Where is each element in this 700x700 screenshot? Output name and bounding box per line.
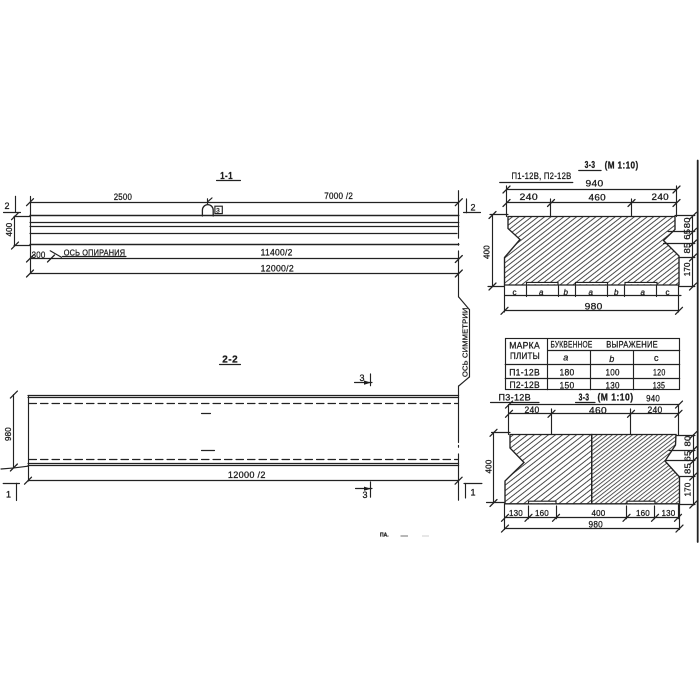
svg-text:a: a — [539, 288, 544, 297]
svg-text:65: 65 — [683, 228, 692, 239]
svg-text:ВЫРАЖЕНИЕ: ВЫРАЖЕНИЕ — [606, 340, 658, 350]
svg-text:П1-12В: П1-12В — [509, 367, 540, 377]
svg-text:П2-12В: П2-12В — [510, 380, 541, 390]
svg-text:980: 980 — [4, 427, 13, 441]
svg-text:3-3: 3-3 — [585, 160, 596, 171]
svg-text:МАРКА: МАРКА — [509, 340, 540, 350]
svg-text:3: 3 — [360, 373, 365, 383]
svg-text:80: 80 — [684, 435, 693, 446]
svg-text:160: 160 — [636, 509, 650, 518]
svg-text:2-2: 2-2 — [222, 354, 238, 365]
svg-text:2: 2 — [471, 203, 476, 213]
svg-text:(М 1:10): (М 1:10) — [598, 393, 634, 404]
svg-text:a: a — [563, 352, 568, 362]
svg-text:130: 130 — [606, 380, 620, 390]
svg-text:180: 180 — [560, 367, 575, 377]
svg-text:2: 2 — [5, 201, 10, 211]
svg-text:3: 3 — [216, 208, 220, 215]
svg-text:170: 170 — [684, 482, 693, 496]
svg-text:ПЛИТЫ: ПЛИТЫ — [510, 351, 540, 361]
svg-text:a: a — [641, 288, 646, 297]
svg-text:85: 85 — [684, 463, 693, 474]
svg-text:135: 135 — [653, 380, 666, 390]
svg-text:240: 240 — [525, 405, 540, 415]
svg-text:460: 460 — [589, 405, 607, 415]
svg-text:400: 400 — [483, 245, 492, 259]
svg-text:85: 85 — [683, 242, 692, 253]
svg-text:120: 120 — [653, 367, 666, 377]
svg-text:65: 65 — [684, 450, 693, 461]
svg-text:400: 400 — [592, 509, 606, 518]
svg-text:400: 400 — [5, 222, 14, 236]
svg-text:П3-12В: П3-12В — [499, 393, 532, 403]
svg-text:c: c — [666, 288, 670, 297]
svg-text:1: 1 — [6, 490, 11, 500]
svg-text:240: 240 — [520, 192, 539, 202]
svg-text:b: b — [564, 288, 569, 297]
svg-text:460: 460 — [589, 192, 607, 202]
svg-text:11400/2: 11400/2 — [261, 247, 293, 257]
svg-text:7000 /2: 7000 /2 — [324, 191, 353, 201]
svg-text:150: 150 — [560, 380, 575, 390]
svg-text:240: 240 — [652, 192, 670, 202]
svg-text:80: 80 — [683, 217, 692, 228]
svg-text:2500: 2500 — [114, 192, 133, 202]
svg-text:400: 400 — [484, 459, 493, 473]
svg-text:240: 240 — [648, 405, 663, 415]
svg-text:100: 100 — [606, 367, 620, 377]
svg-text:130: 130 — [509, 509, 523, 518]
svg-text:980: 980 — [589, 519, 604, 529]
svg-text:a: a — [589, 288, 594, 297]
svg-text:940: 940 — [646, 394, 660, 404]
svg-text:b: b — [614, 288, 619, 297]
svg-text:П1-12В, П2-12В: П1-12В, П2-12В — [512, 171, 572, 181]
svg-text:c: c — [654, 353, 659, 363]
svg-text:c: c — [513, 288, 517, 297]
svg-text:3: 3 — [363, 490, 368, 500]
svg-text:12000 /2: 12000 /2 — [228, 470, 266, 480]
svg-text:130: 130 — [662, 509, 676, 518]
svg-text:ПА.: ПА. — [380, 533, 389, 539]
svg-text:(М 1:10): (М 1:10) — [605, 161, 639, 172]
svg-text:940: 940 — [586, 178, 604, 188]
svg-text:160: 160 — [535, 509, 549, 518]
svg-text:b: b — [609, 354, 614, 364]
svg-text:БУКВЕННОЕ: БУКВЕННОЕ — [551, 340, 593, 350]
svg-text:980: 980 — [585, 302, 603, 312]
svg-text:ОСЬ СИММЕТРИИ: ОСЬ СИММЕТРИИ — [461, 307, 470, 377]
svg-text:1: 1 — [471, 488, 476, 498]
svg-text:12000/2: 12000/2 — [261, 264, 294, 274]
svg-text:170: 170 — [683, 262, 692, 276]
